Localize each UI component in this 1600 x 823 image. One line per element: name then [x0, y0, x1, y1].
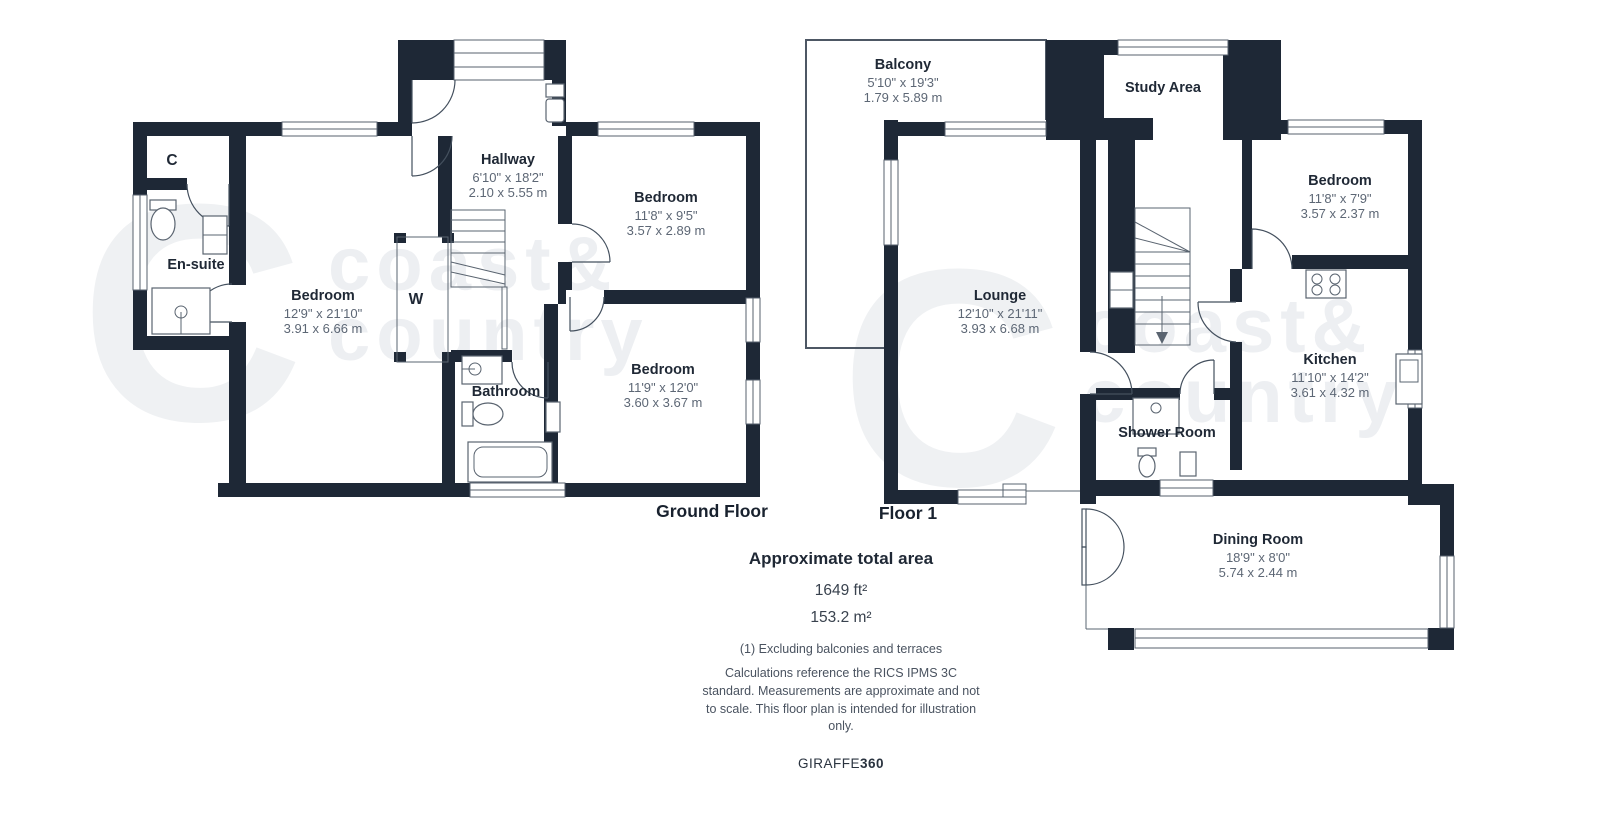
- hall-basin: [546, 99, 564, 122]
- summary-title: Approximate total area: [700, 549, 982, 569]
- stairs-floor-1: [1135, 208, 1190, 345]
- room-label-bathroom: Bathroom: [472, 384, 540, 400]
- room-label-kitchen: Kitchen: [1303, 352, 1356, 368]
- total-area-metric: 153.2 m²: [700, 609, 982, 627]
- floor-label-ground: Ground Floor: [656, 501, 768, 521]
- exclusion-note: (1) Excluding balconies and terraces: [700, 642, 982, 656]
- room-label-cupboard: C: [166, 152, 177, 169]
- toilet-icon: [462, 402, 473, 426]
- room-dims-metric: 5.74 x 2.44 m: [1219, 565, 1298, 580]
- room-dims-imperial: 18'9" x 8'0": [1226, 550, 1290, 565]
- room-dims-imperial: 11'9" x 12'0": [628, 380, 699, 395]
- room-dims-metric: 3.93 x 6.68 m: [961, 321, 1040, 336]
- room-label-hallway: Hallway: [481, 152, 535, 168]
- giraffe360-logo: GIRAFFE360: [700, 756, 982, 771]
- room-label-ensuite: En-suite: [167, 257, 224, 273]
- shelf-icon: [546, 402, 560, 432]
- door-arc: [1252, 229, 1292, 269]
- toilet-icon: [1139, 455, 1155, 477]
- disclaimer-text: Calculations reference the RICS IPMS 3C …: [700, 665, 982, 736]
- room-dims-imperial: 11'8" x 7'9": [1308, 191, 1371, 206]
- total-area-imperial: 1649 ft²: [700, 582, 982, 600]
- window: [454, 40, 544, 80]
- room-dims-metric: 3.61 x 4.32 m: [1291, 385, 1370, 400]
- sink-icon: [1180, 452, 1196, 476]
- sink-icon: [462, 356, 502, 384]
- room-label-wardrobe: W: [409, 291, 424, 308]
- bathtub-icon: [468, 442, 552, 482]
- floor-label-floor-1: Floor 1: [879, 503, 938, 523]
- room-dims-imperial: 12'10" x 21'11": [958, 306, 1043, 321]
- toilet-icon: [151, 208, 175, 240]
- room-label-shower-room: Shower Room: [1118, 425, 1215, 441]
- room-dims-imperial: 11'10" x 14'2": [1291, 370, 1369, 385]
- room-label-lounge: Lounge: [974, 288, 1026, 304]
- room-label-balcony: Balcony: [875, 57, 931, 73]
- room-dims-metric: 1.79 x 5.89 m: [864, 90, 943, 105]
- room-dims-imperial: 6'10" x 18'2": [472, 170, 544, 185]
- french-door-arcs: [1086, 509, 1124, 585]
- entrance-door-arc: [412, 80, 455, 123]
- hob-icon: [1306, 270, 1346, 298]
- room-label-study: Study Area: [1125, 80, 1202, 96]
- brand-name: GIRAFFE: [798, 756, 860, 771]
- room-dims-imperial: 11'8" x 9'5": [634, 208, 697, 223]
- brand-suffix: 360: [860, 756, 884, 771]
- room-label-bedroom-front: Bedroom: [291, 288, 355, 304]
- room-label-bedroom-rear: Bedroom: [631, 362, 695, 378]
- room-dims-metric: 3.91 x 6.66 m: [284, 321, 363, 336]
- room-dims-metric: 2.10 x 5.55 m: [469, 185, 548, 200]
- toilet-icon: [473, 403, 503, 425]
- room-dims-metric: 3.57 x 2.37 m: [1301, 206, 1380, 221]
- room-label-dining-room: Dining Room: [1213, 532, 1303, 548]
- room-label-bedroom: Bedroom: [1308, 173, 1372, 189]
- room-label-bedroom-top: Bedroom: [634, 190, 698, 206]
- total-area-summary: Approximate total area 1649 ft² 153.2 m²…: [700, 549, 982, 771]
- hall-cabinet: [546, 84, 564, 97]
- room-dims-imperial: 5'10" x 19'3": [867, 75, 939, 90]
- room-dims-metric: 3.57 x 2.89 m: [627, 223, 706, 238]
- room-dims-metric: 3.60 x 3.67 m: [624, 395, 703, 410]
- floorplan-page: C coast& country C coast& country: [0, 0, 1600, 823]
- french-door-leaf: [1082, 509, 1086, 547]
- french-door-leaf: [1082, 547, 1086, 585]
- room-dims-imperial: 12'9" x 21'10": [284, 306, 363, 321]
